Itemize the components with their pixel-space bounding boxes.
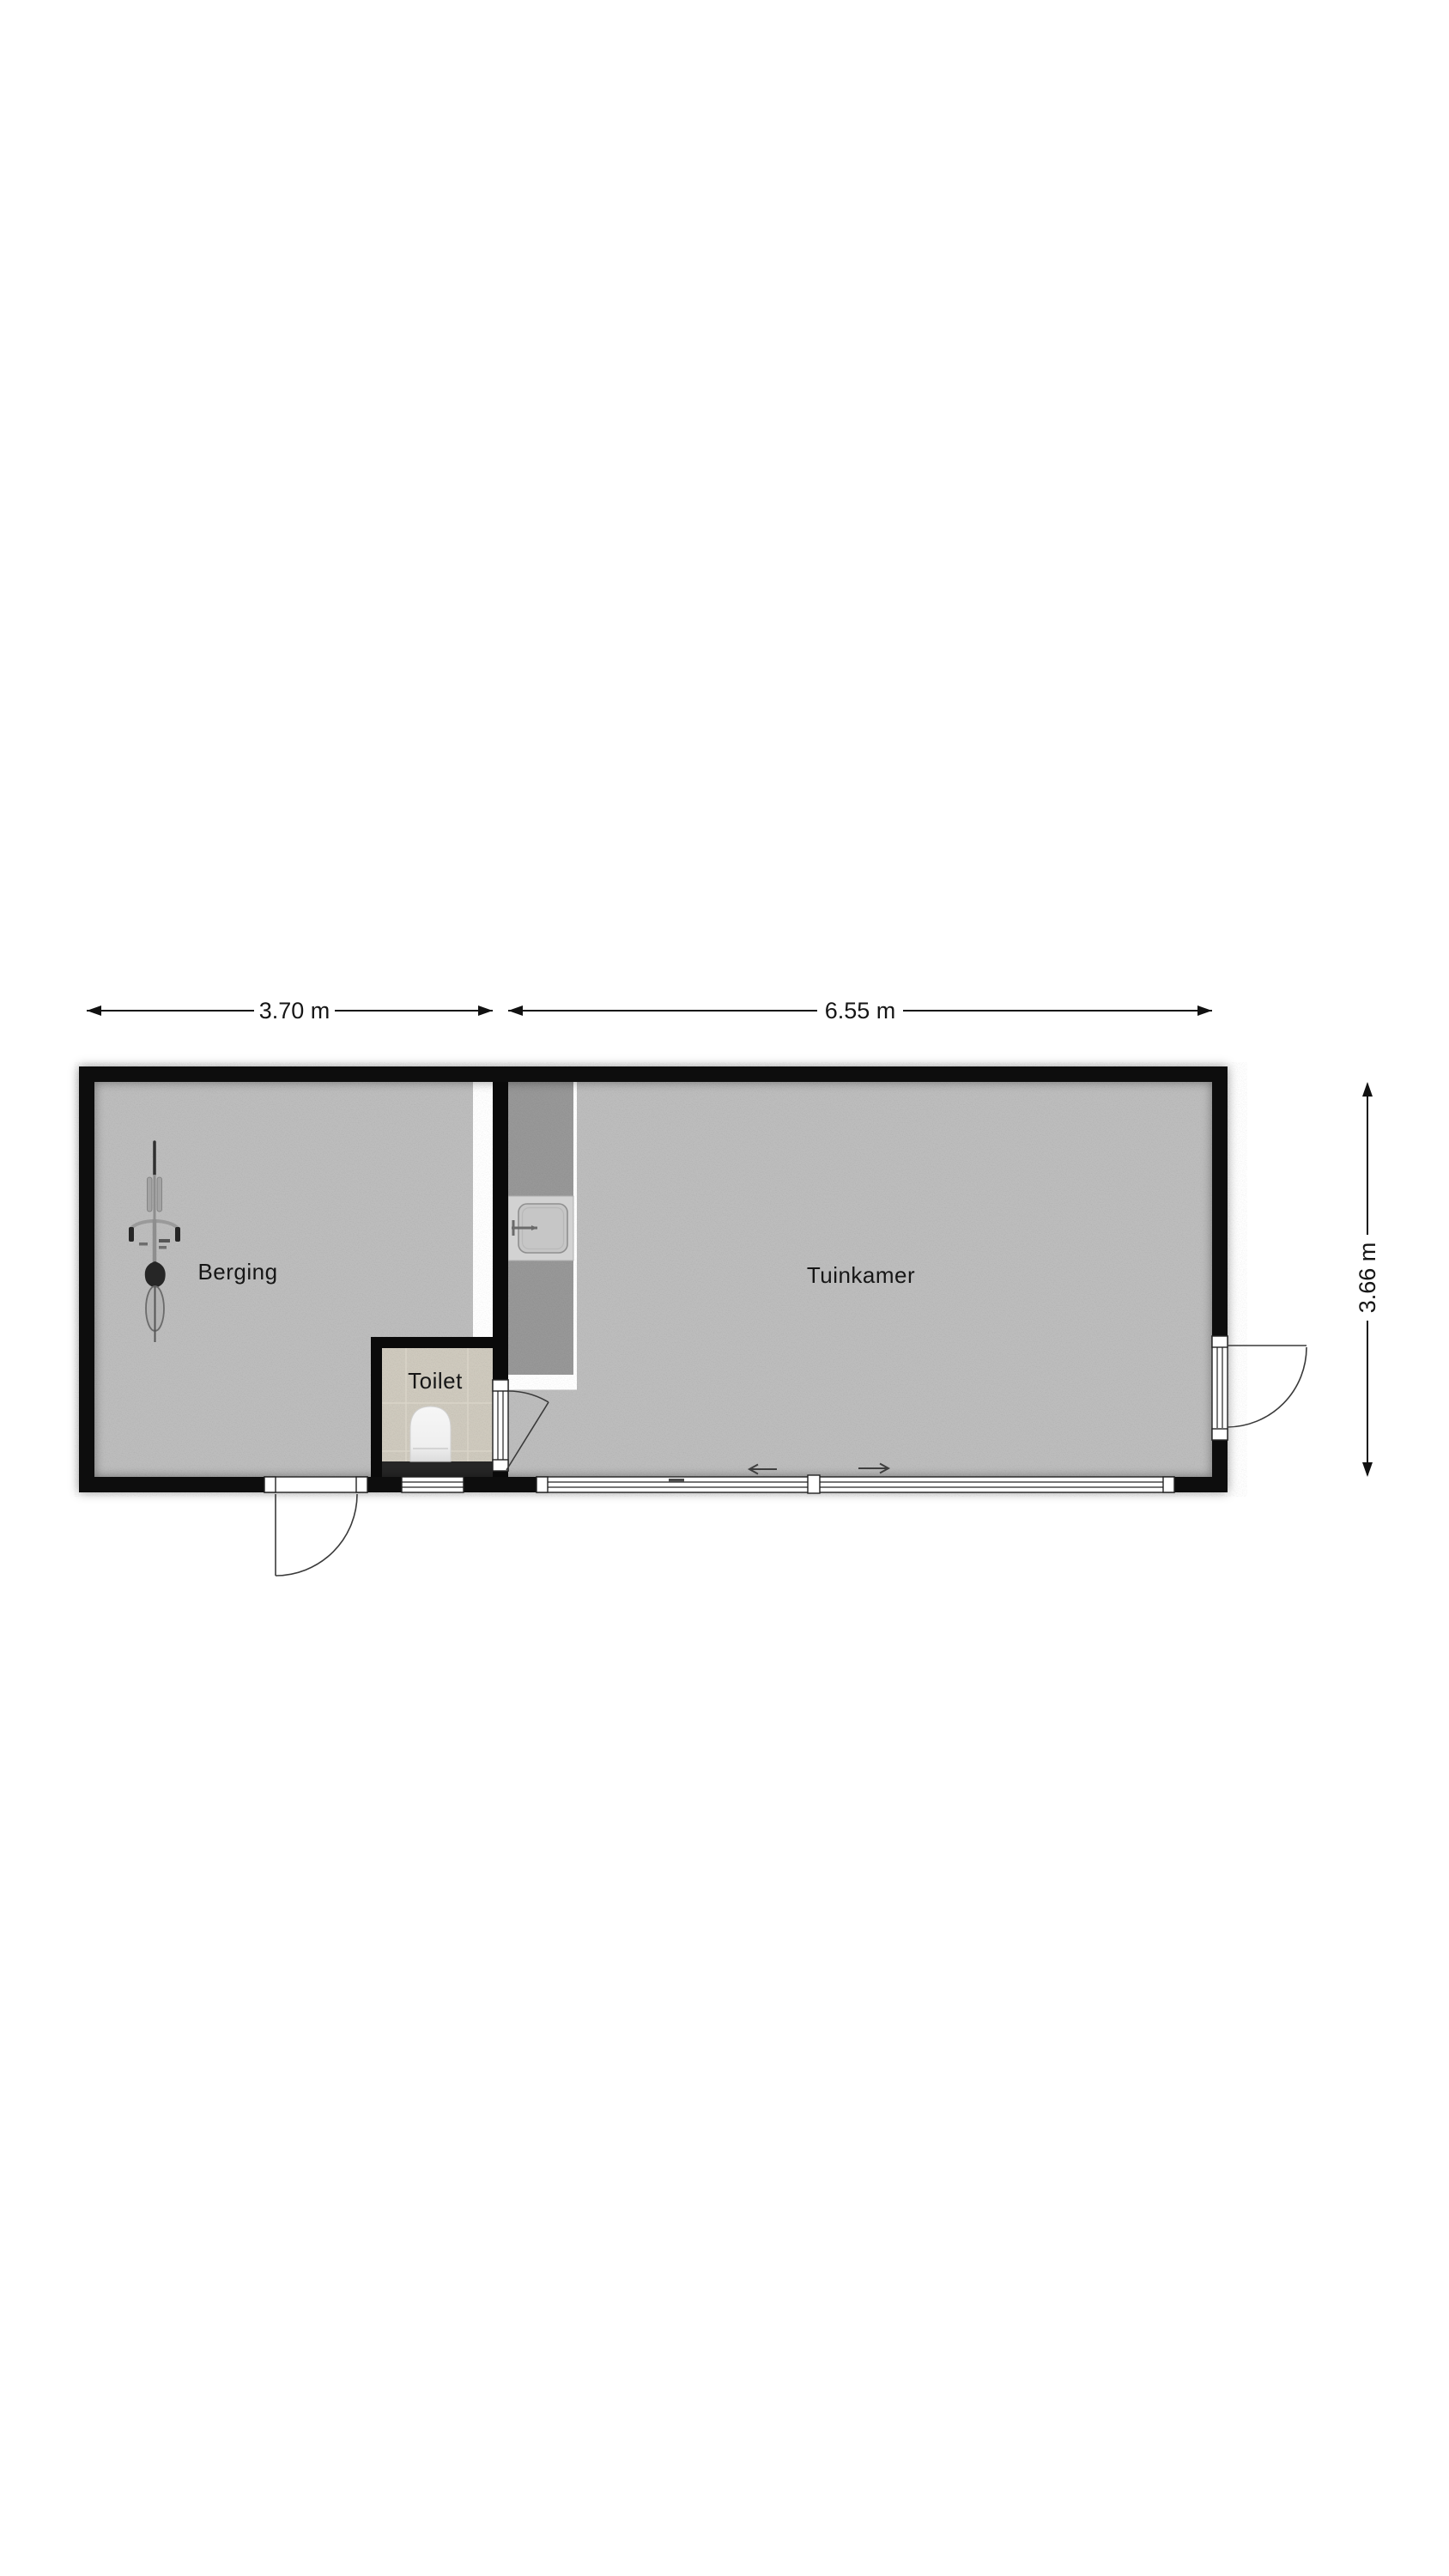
door-swing-icon: [1228, 1346, 1307, 1427]
toilet-wall-left: [371, 1348, 382, 1477]
room-label-toilet: Toilet: [408, 1368, 463, 1394]
room-label-berging: Berging: [197, 1259, 277, 1285]
dimension-depth: 3.66 m: [1355, 1082, 1380, 1477]
toilet-icon: [410, 1406, 451, 1461]
door-handle: [669, 1479, 684, 1482]
floorplan-drawing: 3.70 m 6.55 m 3.66 m Berging Tuinkamer T…: [0, 0, 1449, 2576]
dimension-berging-width: 3.70 m: [87, 998, 493, 1024]
dimension-label: 3.70 m: [259, 998, 330, 1024]
toilet-plinth: [382, 1461, 493, 1477]
room-label-tuinkamer: Tuinkamer: [807, 1262, 915, 1288]
dimension-label: 6.55 m: [825, 998, 896, 1024]
door-swing-icon: [276, 1494, 357, 1576]
dimension-tuinkamer-width: 6.55 m: [508, 998, 1212, 1024]
tuinkamer-side-door: [1212, 1336, 1307, 1440]
kitchen-sink-icon: [508, 1196, 573, 1261]
berging-entry-door: [264, 1477, 367, 1576]
toilet-window: [402, 1477, 464, 1492]
floorplan-canvas: 3.70 m 6.55 m 3.66 m Berging Tuinkamer T…: [0, 0, 1449, 2576]
dimension-label: 3.66 m: [1355, 1242, 1380, 1314]
toilet-wall-top: [371, 1337, 508, 1348]
